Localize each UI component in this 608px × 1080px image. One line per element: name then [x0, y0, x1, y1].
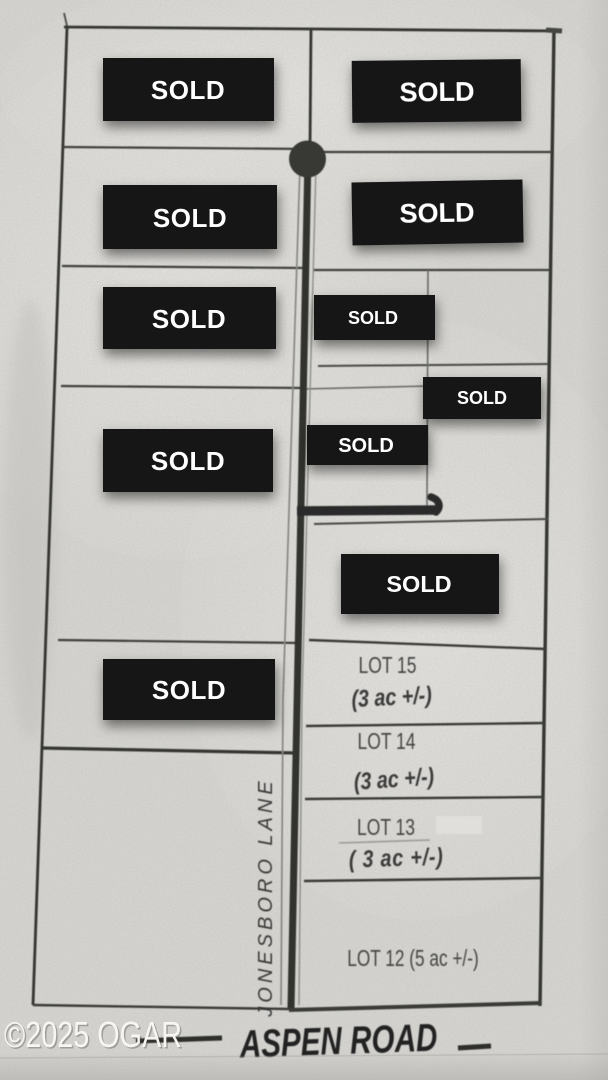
svg-text:(3 ac +/-): (3 ac +/-) [353, 762, 435, 795]
svg-text:LOT 13: LOT 13 [357, 816, 415, 841]
svg-text:SOLD: SOLD [399, 197, 475, 228]
svg-text:LOT 14: LOT 14 [358, 730, 416, 755]
svg-text:SOLD: SOLD [338, 435, 394, 457]
svg-text:SOLD: SOLD [151, 75, 225, 105]
svg-text:LOT 12 (5 ac +/-): LOT 12 (5 ac +/-) [347, 947, 478, 972]
svg-text:SOLD: SOLD [152, 304, 226, 334]
svg-text:SOLD: SOLD [348, 308, 398, 328]
svg-text:SOLD: SOLD [152, 675, 226, 705]
svg-text:LOT 15: LOT 15 [359, 654, 417, 679]
svg-text:JONESBORO LANE: JONESBORO LANE [255, 777, 277, 1017]
svg-text:SOLD: SOLD [386, 571, 451, 597]
svg-text:(3 ac +/-): (3 ac +/-) [351, 681, 433, 713]
svg-text:SOLD: SOLD [153, 203, 227, 233]
svg-text:SOLD: SOLD [151, 446, 225, 476]
svg-text:SOLD: SOLD [457, 388, 507, 408]
svg-text:©2025 OGAR: ©2025 OGAR [4, 1014, 182, 1055]
svg-text:ASPEN ROAD: ASPEN ROAD [238, 1017, 438, 1067]
svg-text:SOLD: SOLD [399, 77, 474, 108]
svg-text:( 3 ac +/-): ( 3 ac +/-) [348, 842, 444, 873]
